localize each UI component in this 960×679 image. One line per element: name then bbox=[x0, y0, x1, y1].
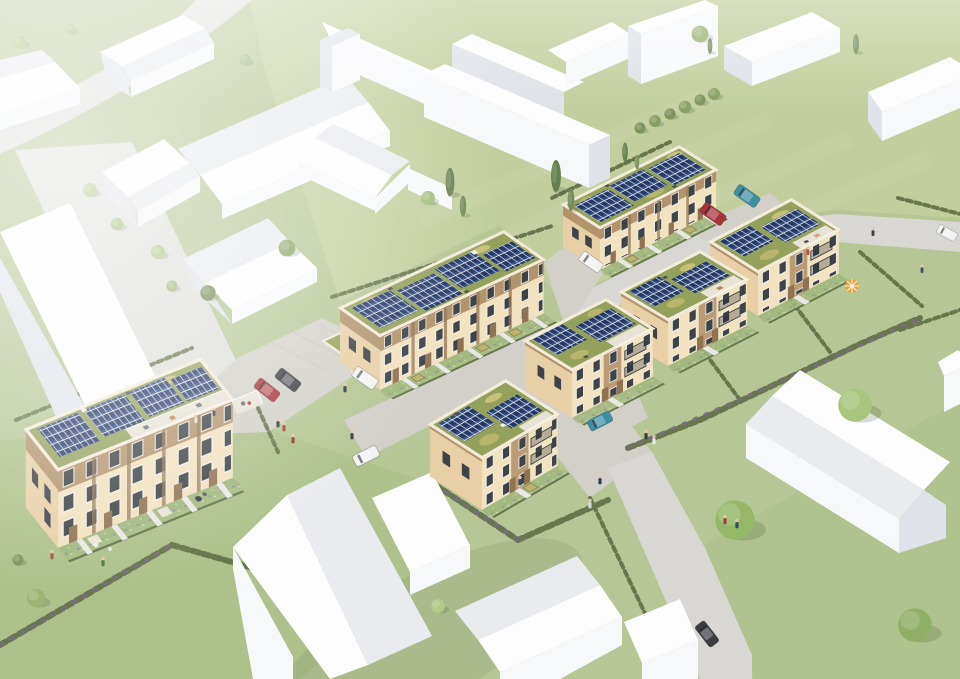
top-haze bbox=[0, 0, 960, 110]
atmosphere-layer bbox=[0, 0, 960, 679]
aerial-rendering: Aerial 3D architectural rendering of a r… bbox=[0, 0, 960, 679]
rendering-canvas: Aerial 3D architectural rendering of a r… bbox=[0, 0, 960, 679]
